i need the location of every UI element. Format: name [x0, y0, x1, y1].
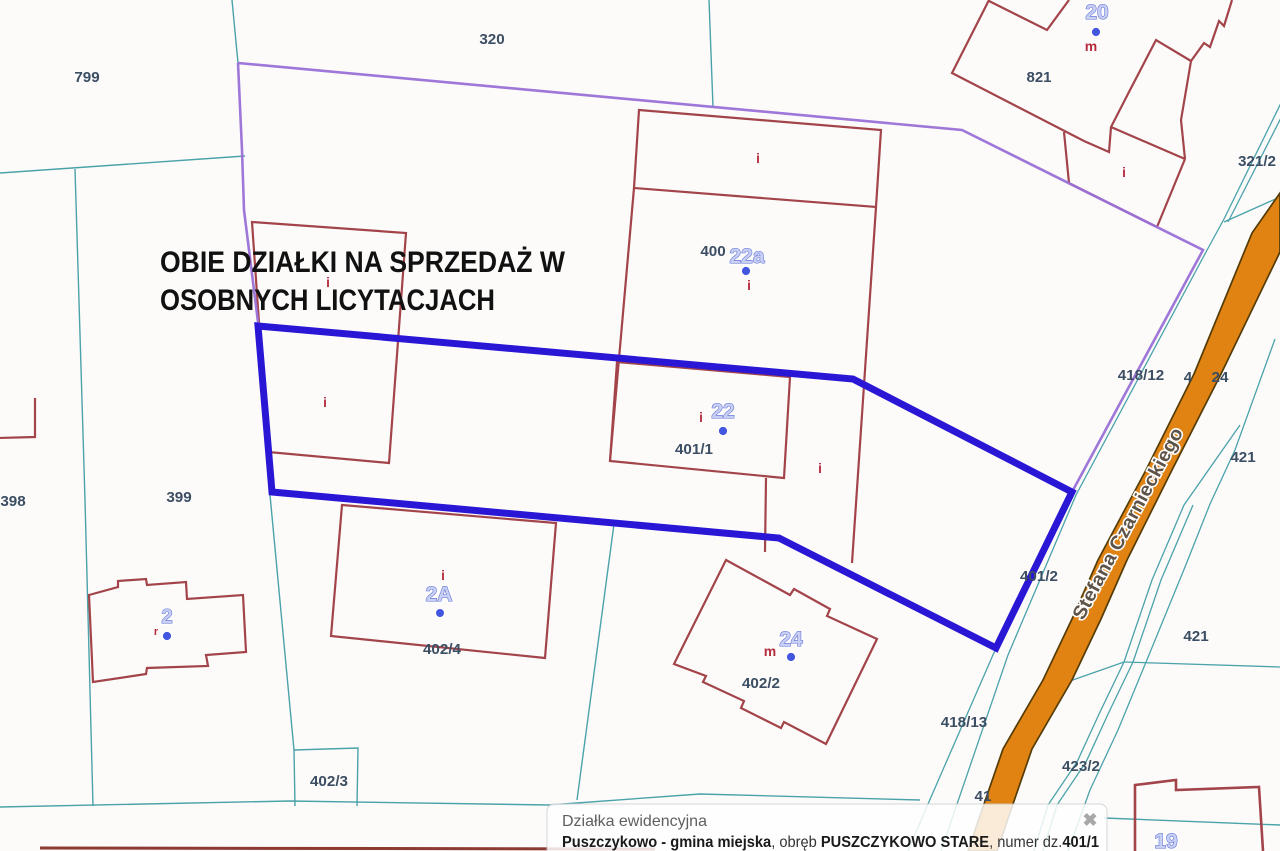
svg-text:398: 398 [0, 493, 25, 510]
svg-text:418/13: 418/13 [941, 714, 987, 731]
svg-text:24: 24 [779, 628, 803, 651]
svg-text:m: m [764, 643, 776, 659]
svg-text:i: i [699, 410, 703, 425]
svg-text:821: 821 [1026, 69, 1051, 86]
svg-text:19: 19 [1154, 830, 1177, 851]
svg-text:i: i [756, 151, 760, 166]
svg-text:r: r [154, 626, 159, 638]
svg-text:OBIE DZIAŁKI NA SPRZEDAŻ W: OBIE DZIAŁKI NA SPRZEDAŻ W [160, 246, 566, 279]
svg-text:423/2: 423/2 [1062, 758, 1100, 775]
svg-text:421: 421 [1230, 449, 1256, 466]
svg-text:401/2: 401/2 [1020, 568, 1058, 585]
svg-text:402/2: 402/2 [742, 675, 780, 692]
svg-text:20: 20 [1085, 1, 1108, 24]
svg-text:400: 400 [700, 243, 725, 260]
svg-text:2A: 2A [426, 583, 453, 606]
svg-text:402/3: 402/3 [310, 773, 348, 790]
svg-text:320: 320 [479, 31, 504, 48]
svg-text:i: i [818, 461, 822, 476]
svg-text:799: 799 [74, 69, 99, 86]
svg-text:i: i [747, 278, 751, 293]
svg-text:22a: 22a [729, 245, 764, 268]
svg-text:4: 4 [1184, 369, 1193, 386]
svg-text:m: m [1085, 38, 1097, 54]
svg-text:401/1: 401/1 [675, 441, 714, 458]
svg-text:Działka ewidencyjna: Działka ewidencyjna [562, 813, 707, 830]
svg-text:418/12: 418/12 [1118, 367, 1164, 384]
svg-text:2: 2 [161, 606, 172, 628]
svg-text:24: 24 [1212, 369, 1229, 386]
svg-text:321/2: 321/2 [1238, 153, 1276, 170]
svg-text:Puszczykowo - gmina miejska, o: Puszczykowo - gmina miejska, obręb PUSZC… [562, 834, 1099, 851]
svg-text:i: i [323, 395, 327, 410]
svg-text:421: 421 [1183, 628, 1209, 645]
svg-text:i: i [1122, 165, 1126, 180]
svg-text:22: 22 [711, 400, 734, 423]
svg-text:399: 399 [166, 489, 191, 506]
svg-text:41: 41 [975, 788, 992, 805]
svg-text:OSOBNYCH LICYTACJACH: OSOBNYCH LICYTACJACH [160, 284, 495, 317]
svg-text:i: i [441, 568, 445, 583]
svg-text:✖: ✖ [1082, 810, 1097, 830]
svg-text:402/4: 402/4 [423, 641, 462, 658]
